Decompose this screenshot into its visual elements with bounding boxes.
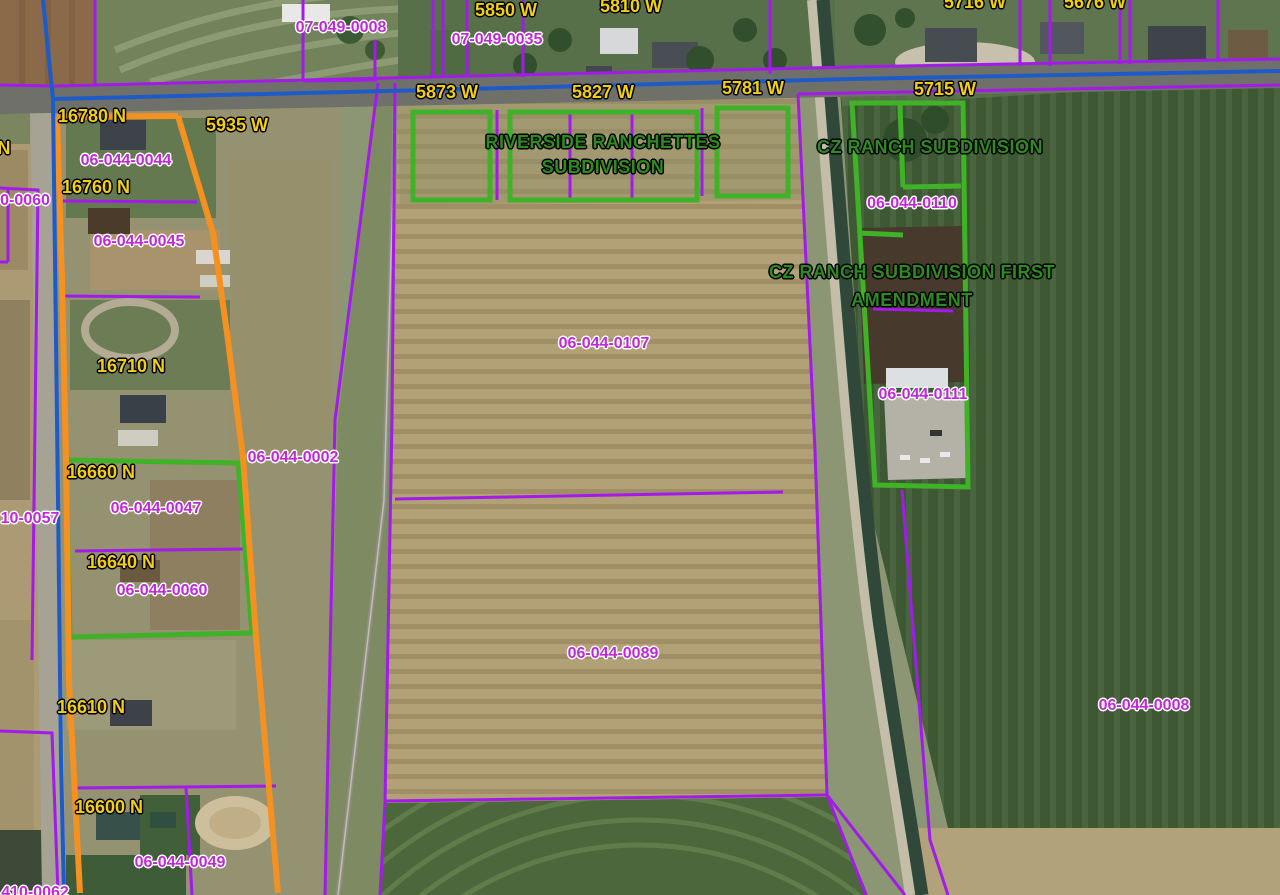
address-label: 5781 W: [722, 79, 784, 97]
address-label: 5676 W: [1064, 0, 1126, 11]
address-label: 16710 N: [97, 357, 165, 375]
address-label: 16780 N: [58, 107, 126, 125]
parcel-id-label: 06-044-0045: [94, 234, 185, 250]
subdivision-label: SUBDIVISION: [542, 158, 665, 176]
address-label: 5850 W: [475, 1, 537, 19]
parcel-id-label: 06-044-0008: [1099, 698, 1190, 714]
address-label: 16610 N: [57, 698, 125, 716]
parcel-id-label: 10-0057: [1, 511, 60, 527]
address-label: N: [0, 139, 11, 157]
subdivision-label: AMENDMENT: [851, 291, 973, 309]
subdivision-label: RIVERSIDE RANCHETTES: [485, 133, 720, 151]
parcel-id-label: 06-044-0047: [111, 501, 202, 517]
parcel-id-label: 07-049-0008: [296, 20, 387, 36]
parcel-id-label: 06-044-0002: [248, 450, 339, 466]
address-label: 5716 W: [944, 0, 1006, 11]
parcel-id-label: 06-044-0060: [117, 583, 208, 599]
address-label: 5810 W: [600, 0, 662, 15]
parcel-id-label: 06-044-0089: [568, 646, 659, 662]
parcel-id-label: 06-044-0044: [81, 153, 172, 169]
address-label: 5935 W: [206, 116, 268, 134]
parcel-id-label: 06-044-0111: [879, 387, 968, 403]
address-label: 5827 W: [572, 83, 634, 101]
subdivision-label: CZ RANCH SUBDIVISION FIRST: [769, 263, 1055, 281]
parcel-id-label: 06-044-0049: [135, 855, 226, 871]
address-label: 5715 W: [914, 80, 976, 98]
address-label: 16640 N: [87, 553, 155, 571]
parcel-id-label: 410-0062: [1, 885, 69, 895]
parcel-id-label: 0-0060: [0, 193, 50, 209]
address-label: 16600 N: [75, 798, 143, 816]
parcel-map-viewport[interactable]: 5850 W5810 W5716 W5676 W5873 W5827 W5781…: [0, 0, 1280, 895]
parcel-id-label: 06-044-0107: [559, 336, 650, 352]
map-label-layer: 5850 W5810 W5716 W5676 W5873 W5827 W5781…: [0, 0, 1280, 895]
address-label: 16760 N: [62, 178, 130, 196]
subdivision-label: CZ RANCH SUBDIVISION: [817, 138, 1043, 156]
address-label: 16660 N: [67, 463, 135, 481]
parcel-id-label: 07-049-0035: [452, 32, 543, 48]
parcel-id-label: 06-044-0110: [867, 196, 957, 212]
address-label: 5873 W: [416, 83, 478, 101]
